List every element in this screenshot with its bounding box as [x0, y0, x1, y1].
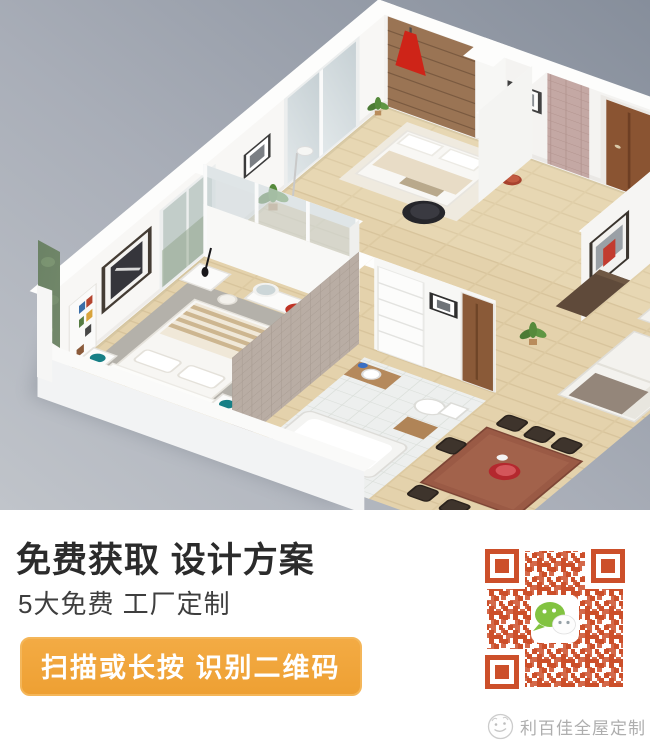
promo-section: 免费获取 设计方案 5大免费 工厂定制 扫描或长按 识别二维码 — [0, 510, 650, 755]
qr-code[interactable] — [479, 543, 631, 695]
brand-logo-icon — [487, 713, 514, 740]
wechat-icon — [531, 595, 579, 643]
mauve-tile-wall — [547, 71, 589, 178]
slatted-door — [378, 266, 424, 366]
floorplan-render — [0, 0, 650, 510]
interior-door — [462, 292, 494, 392]
brand-row: 利百佳全屋定制 — [487, 713, 646, 740]
brand-name: 利百佳全屋定制 — [520, 714, 646, 739]
poster: 免费获取 设计方案 5大免费 工厂定制 扫描或长按 识别二维码 — [0, 0, 650, 755]
corner-column — [37, 285, 52, 382]
cta-button[interactable]: 扫描或长按 识别二维码 — [20, 637, 362, 696]
